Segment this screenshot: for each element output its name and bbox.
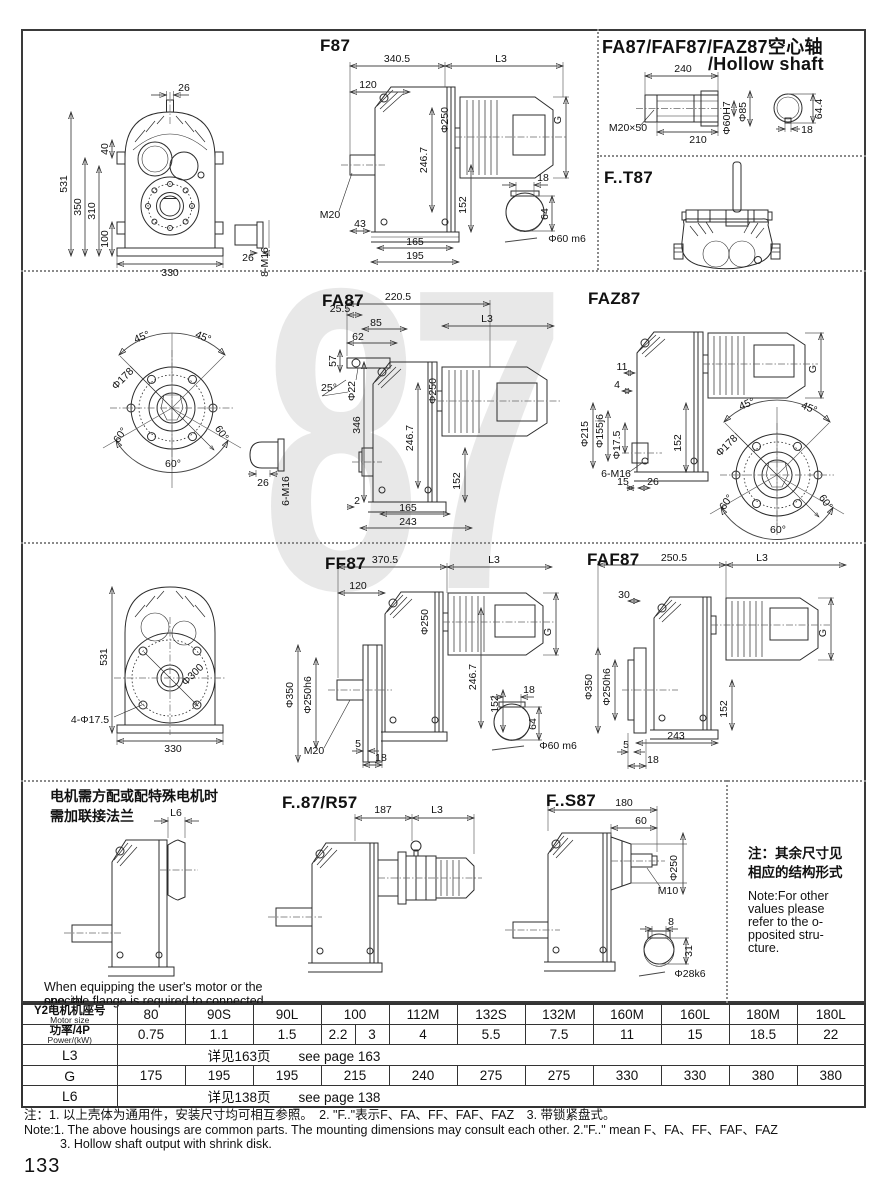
- dim-label: 330: [161, 267, 179, 279]
- dim-label: Φ215: [579, 421, 591, 447]
- dim-label: 152: [718, 700, 730, 718]
- dim-label: 43: [354, 218, 366, 230]
- title-f87: F87: [320, 36, 350, 56]
- dim-label: M20×50: [609, 122, 647, 134]
- shaft-section-detail: 18 64 Φ60 m6: [502, 172, 586, 245]
- g-cell: 330: [593, 1066, 661, 1086]
- g-cell: 380: [729, 1066, 797, 1086]
- title-f87r57: F..87/R57: [282, 793, 357, 813]
- footnote-zh: 注：1. 以上壳体为通用件，安装尺寸均可相互参照。 2. "F.."表示F、FA…: [24, 1108, 864, 1123]
- power-cell: 3: [355, 1025, 389, 1045]
- power-cell: 0.75: [117, 1025, 185, 1045]
- gearbox-side: [622, 332, 708, 481]
- dim-label: Φ250: [439, 107, 451, 133]
- fs87-drawing: 180 60 Φ250 M10 8 31 Φ28k6: [505, 788, 730, 1003]
- g-header: G: [22, 1066, 117, 1086]
- flange-plate: [363, 645, 382, 762]
- g-cell: 240: [389, 1066, 457, 1086]
- dim-label: L3: [488, 554, 500, 566]
- dim-label: 246.7: [404, 425, 416, 451]
- dim-label: 60°: [165, 458, 181, 470]
- torque-arm-housing-top-view: [674, 162, 780, 269]
- dim-label: Φ60H7: [721, 101, 733, 135]
- dim-label: Φ250h6: [601, 668, 613, 706]
- motor-size-cell: 100: [321, 1004, 389, 1025]
- g-cell: 175: [117, 1066, 185, 1086]
- dim-label: Φ250: [427, 378, 439, 404]
- output-shaft: [341, 155, 385, 175]
- dim-label: G: [542, 628, 554, 636]
- motor-side: [443, 593, 556, 655]
- shaft-section-detail: 8 31 Φ28k6: [639, 916, 706, 980]
- dim-label: Φ300: [179, 661, 206, 688]
- title-fs87: F..S87: [546, 791, 596, 811]
- dim-label: Φ22: [346, 381, 358, 401]
- dim-label: 330: [164, 743, 182, 755]
- dim-label: 152: [457, 196, 469, 214]
- dim-label: 26: [257, 477, 269, 489]
- dim-label: L3: [481, 313, 493, 325]
- power-header: 功率/4P Power/(kW): [22, 1025, 117, 1045]
- motor-size-cell: 160M: [593, 1004, 661, 1025]
- dim-label: 60°: [111, 425, 130, 445]
- dim-label: 26: [242, 252, 254, 264]
- motor-size-cell: 132S: [457, 1004, 525, 1025]
- power-row: 功率/4P Power/(kW) 0.75 1.1 1.5 2.2 3 4 5.…: [22, 1025, 865, 1045]
- footnote-en-line2: 3. Hollow shaft output with shrink disk.: [24, 1137, 864, 1152]
- motor-size-row: Y2电机机座号 Motor size 80 90S 90L 100 112M 1…: [22, 1004, 865, 1025]
- dim-label: L3: [495, 53, 507, 65]
- title-hollow-shaft-en: /Hollow shaft: [708, 54, 824, 75]
- dim-label: 85: [370, 317, 382, 329]
- g-cell: 215: [321, 1066, 389, 1086]
- ff87-front-drawing: 531 Φ300 4-Φ17.5 330: [52, 555, 310, 783]
- dim-label: 340.5: [384, 53, 410, 65]
- dim-label: 31: [683, 945, 695, 957]
- dim-label: 152: [672, 434, 684, 452]
- fa87-side-drawing: 220.5 25.5 85 62 57 25° Φ22 346 Φ250 246…: [302, 288, 600, 540]
- dim-label: 120: [359, 79, 377, 91]
- side-note-zh-line2: 相应的结构形式: [748, 863, 862, 882]
- dim-label: M20: [320, 209, 341, 221]
- gearbox-side: [622, 597, 718, 739]
- l6-row: L6 详见138页see page 138: [22, 1086, 865, 1108]
- dim-label: 26: [178, 82, 190, 94]
- flange-note-cell: 电机需方配或配特殊电机时 需加联接法兰 L6 When equipping th…: [26, 783, 276, 1003]
- power-cell: 22: [797, 1025, 865, 1045]
- divider-row2-row3: [21, 542, 866, 544]
- l3-header: L3: [22, 1045, 117, 1066]
- dim-label: 220.5: [385, 291, 411, 303]
- dim-label: 26: [647, 476, 659, 488]
- dim-label: 2: [354, 495, 360, 507]
- dim-label: 195: [406, 250, 424, 262]
- motor-size-cell: 90L: [253, 1004, 321, 1025]
- dim-label: 60: [635, 815, 647, 827]
- faz87-drawing: 11 4 Φ215 Φ155j6 Φ17.5 152 6-M16 15 26 G…: [572, 283, 868, 541]
- g-row: G 175 195 195 215 240 275 275 330 330 38…: [22, 1066, 865, 1086]
- power-cell: 5.5: [457, 1025, 525, 1045]
- dim-label: 100: [99, 230, 111, 248]
- dim-label: 210: [689, 134, 707, 146]
- r57-input-unit: [378, 841, 482, 904]
- power-cell: 11: [593, 1025, 661, 1045]
- fa87-flange-drawing: 45° 45° 60° 60° 60° Φ178 26 6-M16: [52, 295, 310, 540]
- power-cell: 7.5: [525, 1025, 593, 1045]
- shaft-end-section: 64.4 18: [774, 94, 825, 136]
- g-cell: 275: [525, 1066, 593, 1086]
- flange-note-zh-line1: 电机需方配或配特殊电机时: [50, 786, 218, 806]
- dim-label: 4: [614, 379, 620, 391]
- dim-label: 57: [327, 355, 339, 367]
- side-note-en-line5: cture.: [748, 942, 862, 955]
- dim-label: 64.4: [813, 99, 825, 120]
- dimension-lines: 250.5 L3 30 Φ350 Φ250h6 152 243 5 18 G: [583, 552, 846, 769]
- title-ff87: FF87: [325, 554, 366, 574]
- dim-label: 18: [801, 124, 813, 136]
- dim-label: Φ178: [109, 365, 136, 392]
- output-flange-front: [141, 177, 199, 235]
- faf87-drawing: 250.5 L3 30 Φ350 Φ250h6 152 243 5 18 G: [578, 548, 866, 788]
- dim-label: 15: [617, 476, 629, 488]
- motor-side: [703, 333, 818, 398]
- dim-label: 18: [375, 752, 387, 764]
- gearbox-side: [505, 833, 615, 971]
- dimension-table: Y2电机机座号 Motor size 80 90S 90L 100 112M 1…: [21, 1003, 866, 1108]
- dim-label: Φ85: [737, 102, 749, 122]
- g-cell: 380: [797, 1066, 865, 1086]
- motor-size-cell: 112M: [389, 1004, 457, 1025]
- dim-label: 246.7: [467, 664, 479, 690]
- page-number: 133: [24, 1155, 60, 1178]
- dim-label: 45°: [132, 329, 151, 346]
- dim-label: 180: [615, 797, 633, 809]
- dimension-lines: 26 531 350 310 100 40 330: [58, 82, 223, 279]
- title-faf87: FAF87: [587, 550, 640, 570]
- power-cell: 1.5: [253, 1025, 321, 1045]
- dim-label: 120: [349, 580, 367, 592]
- dim-label: 350: [72, 198, 84, 216]
- l3-row: L3 详见163页see page 163: [22, 1045, 865, 1066]
- power-cell: 1.1: [185, 1025, 253, 1045]
- dim-label: L3: [756, 552, 768, 564]
- dim-label: G: [552, 116, 564, 124]
- dimension-lines: 220.5 25.5 85 62 57 25° Φ22 346 Φ250 246…: [321, 291, 554, 528]
- dim-label: Φ250: [668, 855, 680, 881]
- output-flange-front: [114, 617, 226, 735]
- dimension-lines: 240 210 M20×50 Φ60H7 Φ85: [609, 63, 750, 146]
- dimension-lines: 370.5 L3 120 Φ250 246.7 152 G Φ350 Φ250h…: [284, 554, 559, 768]
- dim-label: 4-Φ17.5: [71, 714, 109, 726]
- title-ft87: F..T87: [604, 168, 653, 188]
- catalog-page: { "page": {"number": "133", "watermark":…: [0, 0, 888, 1191]
- flange-face: 45° 45° 60° 60° 60° Φ178: [710, 396, 844, 540]
- motor-size-header: Y2电机机座号 Motor size: [22, 1004, 117, 1025]
- dim-label: 187: [374, 804, 392, 816]
- dim-label: 5: [355, 738, 361, 750]
- dim-label: 18: [523, 684, 535, 696]
- dim-label: 240: [674, 63, 692, 75]
- dim-label: 346: [351, 416, 363, 434]
- f87-front-drawing: 26 531 350 310 100 40 330 26 8-M16: [55, 80, 290, 278]
- power-cell: 15: [661, 1025, 729, 1045]
- gearbox-front-outline: [117, 92, 223, 256]
- motor-side: [437, 367, 560, 436]
- dim-label: 531: [98, 648, 110, 666]
- dim-label: Φ350: [583, 674, 595, 700]
- g-cell: 275: [457, 1066, 525, 1086]
- dim-label: G: [807, 365, 819, 373]
- dim-label: L6: [170, 807, 182, 819]
- title-faz87: FAZ87: [588, 289, 641, 309]
- dim-label: 11: [617, 361, 628, 373]
- gearbox-side: [381, 592, 447, 741]
- dim-label: 243: [399, 516, 417, 528]
- dimension-lines: L6: [154, 807, 199, 838]
- g-cell: 195: [253, 1066, 321, 1086]
- dim-label: 40: [99, 143, 111, 155]
- dim-label: 8-M16: [259, 247, 271, 277]
- f87r57-drawing: 187 L3: [266, 788, 524, 1000]
- dimension-lines: 180 60 Φ250 M10: [548, 797, 687, 897]
- dim-label: 6-M16: [280, 476, 292, 506]
- gearbox-side: [268, 843, 382, 972]
- motor-size-cell: 132M: [525, 1004, 593, 1025]
- dim-label: 165: [399, 502, 417, 514]
- l6-value: 详见138页see page 138: [117, 1086, 865, 1108]
- dim-label: 30: [618, 589, 630, 601]
- dim-label: 8: [668, 916, 674, 928]
- dim-label: Φ250h6: [302, 676, 314, 714]
- ff87-side-drawing: 370.5 L3 120 Φ250 246.7 152 G Φ350 Φ250h…: [280, 548, 590, 788]
- dim-label: 64: [539, 208, 551, 220]
- dim-label: 246.7: [418, 147, 430, 173]
- dim-label: 531: [58, 175, 70, 193]
- dim-label: Φ60 m6: [539, 740, 577, 752]
- dim-label: Φ250: [419, 609, 431, 635]
- plug-detail: 26 8-M16: [235, 220, 271, 277]
- l6-header: L6: [22, 1086, 117, 1108]
- dim-label: M10: [658, 885, 679, 897]
- dim-label: Φ178: [713, 432, 740, 459]
- dim-label: 62: [352, 331, 364, 343]
- footnotes: 注：1. 以上壳体为通用件，安装尺寸均可相互参照。 2. "F.."表示F、FA…: [24, 1108, 864, 1152]
- dim-label: G: [817, 629, 829, 637]
- dim-label: 370.5: [372, 554, 398, 566]
- dim-label: 250.5: [661, 552, 687, 564]
- dimension-lines: 187 L3: [355, 804, 474, 854]
- dim-label: 25°: [321, 382, 337, 394]
- flange-note-zh-line2: 需加联接法兰: [50, 806, 134, 826]
- motor-size-cell: 80: [117, 1004, 185, 1025]
- dim-label: 60°: [770, 524, 786, 536]
- dimension-lines: 531 Φ300 4-Φ17.5 330: [71, 587, 223, 755]
- dim-label: Φ60 m6: [548, 233, 586, 245]
- f87-side-drawing: 340.5 L3 120 Φ250 246.7 G 152 M20 43 165…: [305, 50, 600, 278]
- flange-plate: [628, 648, 646, 733]
- power-cell: 18.5: [729, 1025, 797, 1045]
- side-note: 注：其余尺寸见 相应的结构形式 Note:For other values pl…: [748, 844, 862, 955]
- power-cell: 4: [389, 1025, 457, 1045]
- dim-label: 243: [667, 730, 685, 742]
- gearbox-side: [64, 840, 174, 976]
- motor-size-cell: 180L: [797, 1004, 865, 1025]
- motor-side: [711, 598, 830, 660]
- dim-label: Φ17.5: [611, 430, 623, 459]
- dim-label: 64: [527, 718, 539, 730]
- dim-label: 18: [647, 754, 659, 766]
- motor-size-cell: 90S: [185, 1004, 253, 1025]
- plug-detail: 26 6-M16: [248, 439, 292, 506]
- hollow-shaft-cylinder: [636, 91, 730, 126]
- title-fa87: FA87: [322, 291, 364, 311]
- dim-label: Φ350: [284, 682, 296, 708]
- motor-size-cell: 160L: [661, 1004, 729, 1025]
- g-cell: 195: [185, 1066, 253, 1086]
- dim-label: 310: [86, 202, 98, 220]
- dim-label: Φ28k6: [674, 968, 705, 980]
- dim-label: 152: [451, 472, 463, 490]
- dim-label: 60°: [717, 492, 736, 512]
- dim-label: 165: [406, 236, 424, 248]
- l3-value: 详见163页see page 163: [117, 1045, 865, 1066]
- g-cell: 330: [661, 1066, 729, 1086]
- coupling-flange: [160, 840, 198, 900]
- side-note-zh-line1: 注：其余尺寸见: [748, 844, 862, 863]
- dim-label: Φ155j6: [594, 414, 606, 448]
- dim-label: M20: [304, 745, 325, 757]
- dim-label: 45°: [800, 400, 819, 417]
- dim-label: 18: [537, 172, 549, 184]
- footnote-en-line1: Note:1. The above housings are common pa…: [24, 1123, 864, 1138]
- dim-label: L3: [431, 804, 443, 816]
- dimension-table-wrap: Y2电机机座号 Motor size 80 90S 90L 100 112M 1…: [21, 1003, 866, 1108]
- power-cell: 2.2: [321, 1025, 355, 1045]
- motor-side: [455, 97, 567, 178]
- motor-size-cell: 180M: [729, 1004, 797, 1025]
